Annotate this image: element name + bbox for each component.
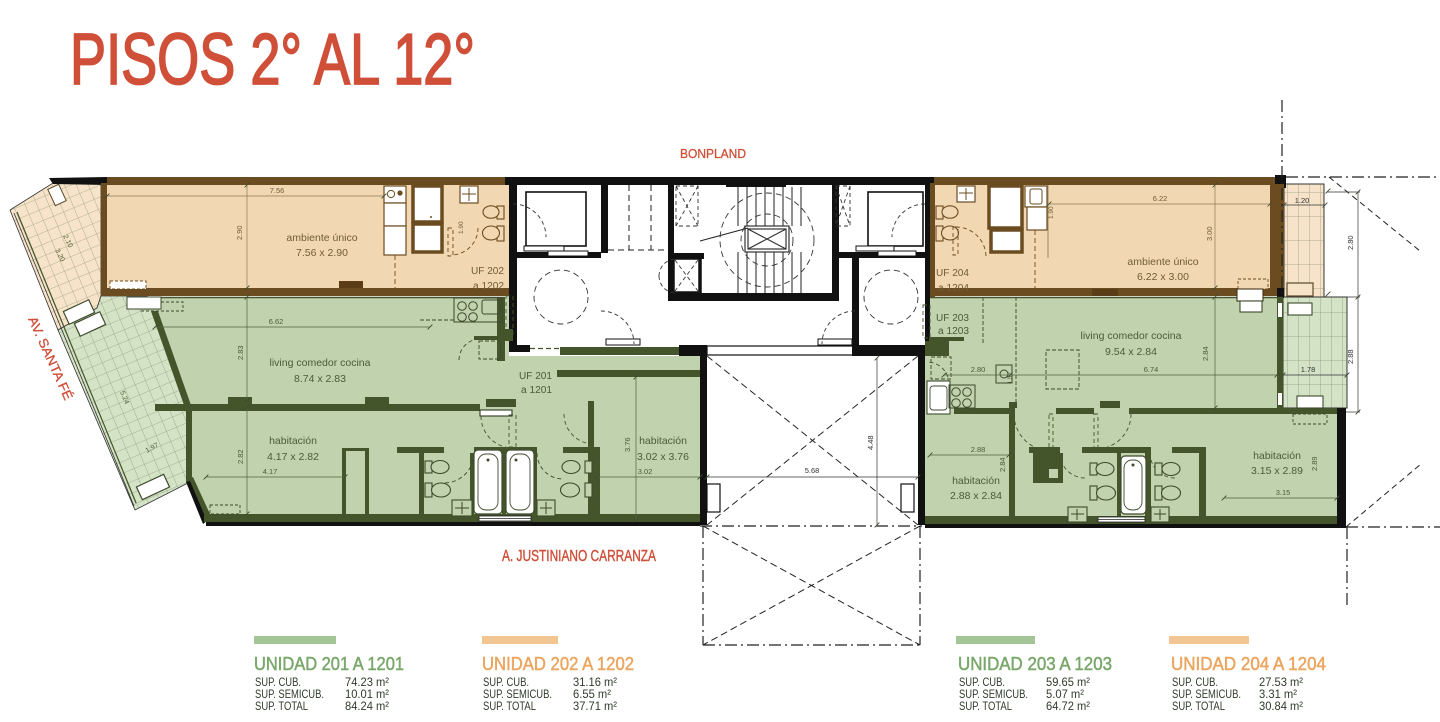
svg-text:UF 201: UF 201	[519, 371, 552, 382]
svg-text:2.88: 2.88	[971, 445, 986, 454]
svg-text:a 1204: a 1204	[938, 283, 969, 294]
svg-text:3.00: 3.00	[1205, 226, 1214, 241]
svg-text:ambiente único: ambiente único	[286, 232, 357, 244]
svg-text:6.22: 6.22	[1153, 194, 1168, 203]
svg-text:4.17: 4.17	[263, 467, 278, 476]
svg-text:2.84: 2.84	[998, 457, 1007, 472]
svg-text:4.17 x 2.82: 4.17 x 2.82	[267, 451, 319, 463]
svg-text:2.88 x 2.84: 2.88 x 2.84	[950, 490, 1002, 502]
svg-text:2.88: 2.88	[1346, 349, 1355, 364]
svg-text:84.24 m²: 84.24 m²	[345, 699, 389, 713]
svg-text:64.72 m²: 64.72 m²	[1046, 699, 1090, 713]
svg-text:6.22 x 3.00: 6.22 x 3.00	[1137, 271, 1189, 283]
svg-text:UNIDAD 204 A 1204: UNIDAD 204 A 1204	[1171, 653, 1326, 674]
svg-text:30.84 m²: 30.84 m²	[1259, 699, 1303, 713]
svg-text:2.90: 2.90	[235, 225, 244, 240]
svg-text:SUP. TOTAL: SUP. TOTAL	[959, 699, 1012, 713]
svg-text:2.80: 2.80	[971, 365, 986, 374]
svg-text:habitación: habitación	[269, 435, 317, 447]
svg-text:PISOS 2° AL 12°: PISOS 2° AL 12°	[70, 20, 475, 100]
svg-text:1.78: 1.78	[1301, 365, 1316, 374]
svg-text:living comedor cocina: living comedor cocina	[1081, 330, 1182, 342]
svg-text:UNIDAD 201 A 1201: UNIDAD 201 A 1201	[254, 653, 404, 674]
svg-text:UF 202: UF 202	[471, 266, 504, 277]
svg-text:3.15: 3.15	[1276, 488, 1291, 497]
svg-text:3.02: 3.02	[638, 467, 653, 476]
svg-text:3.76: 3.76	[623, 437, 632, 452]
svg-text:UF 204: UF 204	[936, 268, 969, 279]
svg-text:6.62: 6.62	[269, 317, 284, 326]
svg-text:UF 203: UF 203	[936, 313, 969, 324]
svg-text:8.74 x 2.83: 8.74 x 2.83	[294, 373, 346, 385]
svg-text:7.56: 7.56	[270, 186, 285, 195]
svg-text:37.71 m²: 37.71 m²	[573, 699, 617, 713]
svg-text:2.89: 2.89	[1310, 456, 1319, 471]
svg-text:SUP. TOTAL: SUP. TOTAL	[255, 699, 308, 713]
svg-text:2.83: 2.83	[236, 345, 245, 360]
svg-text:3.02 x 3.76: 3.02 x 3.76	[637, 451, 689, 463]
svg-text:SUP. TOTAL: SUP. TOTAL	[483, 699, 536, 713]
svg-text:living comedor cocina: living comedor cocina	[270, 357, 371, 369]
svg-text:SUP. TOTAL: SUP. TOTAL	[1172, 699, 1225, 713]
svg-text:ambiente único: ambiente único	[1127, 256, 1198, 268]
svg-text:7.56 x 2.90: 7.56 x 2.90	[296, 247, 348, 259]
svg-text:UNIDAD 203 A 1203: UNIDAD 203 A 1203	[958, 653, 1112, 674]
svg-text:4.48: 4.48	[866, 435, 875, 450]
svg-text:habitación: habitación	[1253, 450, 1301, 462]
svg-text:1.90: 1.90	[1048, 206, 1055, 219]
svg-text:a 1202: a 1202	[473, 281, 504, 292]
svg-text:a 1201: a 1201	[521, 385, 552, 396]
svg-text:a 1203: a 1203	[938, 326, 969, 337]
svg-text:UNIDAD 202 A 1202: UNIDAD 202 A 1202	[482, 653, 634, 674]
svg-text:2.84: 2.84	[1201, 346, 1210, 361]
svg-text:3.15 x 2.89: 3.15 x 2.89	[1251, 465, 1303, 477]
svg-text:1.90: 1.90	[458, 221, 465, 234]
svg-text:6.74: 6.74	[1144, 365, 1159, 374]
svg-text:habitación: habitación	[639, 435, 687, 447]
svg-text:A. JUSTINIANO CARRANZA: A. JUSTINIANO CARRANZA	[502, 548, 656, 565]
svg-text:2.80: 2.80	[1346, 235, 1355, 250]
svg-text:5.68: 5.68	[805, 466, 820, 475]
svg-text:habitación: habitación	[952, 475, 1000, 487]
svg-text:2.82: 2.82	[236, 449, 245, 464]
svg-text:1.20: 1.20	[1295, 196, 1310, 205]
svg-text:9.54 x 2.84: 9.54 x 2.84	[1105, 346, 1157, 358]
svg-text:BONPLAND: BONPLAND	[680, 146, 746, 161]
